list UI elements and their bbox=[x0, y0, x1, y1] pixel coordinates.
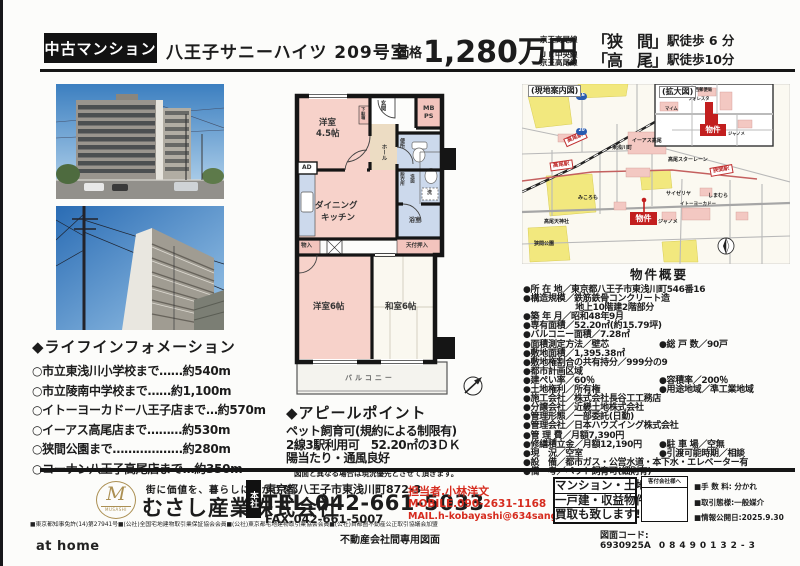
price-label: 価格 bbox=[396, 42, 422, 61]
station-name: 「高 尾」 bbox=[592, 47, 667, 71]
published-date-note: ■情報公開日:2025.9.30 bbox=[694, 512, 784, 523]
map-drawing bbox=[522, 84, 790, 264]
room-label-bath: 浴室 bbox=[409, 218, 421, 224]
map-place-itoyokado: イトーヨーカドー bbox=[680, 202, 716, 208]
header-divider bbox=[40, 69, 795, 72]
company-logo-subtext: MUSASHI bbox=[101, 506, 131, 512]
property-title: 八王子サニーハイツ 209号室 bbox=[166, 38, 409, 63]
diagram-code-number: 08490132-3 bbox=[659, 541, 759, 551]
company-logo: M MUSASHI bbox=[96, 481, 136, 519]
map-place-starlane: 高尾スターレーン bbox=[668, 158, 708, 164]
property-overview-title: 物件概要 bbox=[523, 264, 795, 283]
life-information-title: ◆ライフインフォメーション bbox=[32, 336, 277, 357]
purchase-offer-line: 一戸建・収益物件 bbox=[555, 494, 635, 509]
client-company-label: 客付会社様へ bbox=[641, 476, 688, 488]
section-divider bbox=[40, 468, 795, 472]
property-overview-list: ●所 在 地／東京都八王子市東浅川町546番16 ●構造規模／鉄筋鉄骨コンクリー… bbox=[523, 286, 795, 477]
room-label-dressing: 脱衣所 bbox=[399, 172, 404, 186]
rail-line-name: 京王高尾線 bbox=[540, 36, 592, 44]
floor-plan: 洋室 4.5帖 下駄箱 玄関 MB PS ホール 便所 脱衣所 洗面 洗 AD … bbox=[285, 92, 490, 402]
purchase-offer-line: 買取も致します! bbox=[555, 508, 635, 522]
station-row: ＪＲ中央線 京王高尾線 「高 尾」 駅徒歩10分 bbox=[540, 49, 795, 68]
room-label-storage: 物入 bbox=[301, 244, 312, 250]
room-label-hall: ホール bbox=[380, 144, 386, 161]
contact-person: 担当者.小林洋文 bbox=[408, 483, 489, 499]
room-label-kitchen: キッチン bbox=[321, 214, 355, 223]
room-label-western-6: 洋室6帖 bbox=[313, 303, 344, 312]
map-caption: (現地案内図) bbox=[528, 85, 581, 97]
head-office-badge: 本社 bbox=[246, 480, 261, 518]
map-inset-caption: (拡大図) bbox=[659, 86, 696, 98]
license-text: ■東京都知事免許(14)第27941号■(公社)全国宅地建物取引業保証協会会員■… bbox=[30, 519, 460, 528]
walk-time: 駅徒歩10分 bbox=[667, 49, 734, 68]
fee-note: ■手 数 料: 分かれ bbox=[694, 481, 757, 492]
life-information-list: ○市立東浅川小学校まで……約540m○市立陵南中学校まで……約1,100m○イト… bbox=[32, 362, 277, 479]
room-label-shoebox: 下駄箱 bbox=[361, 107, 365, 120]
room-label-ad: AD bbox=[302, 165, 312, 171]
property-category-badge: 中古マンション bbox=[44, 33, 157, 63]
flyer-page: 中古マンション 八王子サニーハイツ 209号室 価格 1,280万円 京王高尾線… bbox=[0, 0, 800, 566]
room-label-closet: 天付押入 bbox=[406, 244, 428, 250]
map-place-higashiasakawa: 東浅川町 bbox=[612, 146, 632, 152]
map-place-saizeriya: サイゼリヤ bbox=[666, 192, 691, 198]
appeal-point-title: ◆アピールポイント bbox=[286, 402, 516, 423]
overview-row-right: ●用途地域／準工業地域 bbox=[659, 386, 754, 395]
company-fax: FAX.042-661-5007 bbox=[265, 512, 383, 526]
purchase-offer-line: マンション・土地・ bbox=[555, 479, 635, 494]
room-label-dining: ダイニング bbox=[315, 202, 358, 211]
life-info-item: ○市立東浅川小学校まで……約540m bbox=[32, 362, 277, 382]
purchase-offer-box: マンション・土地・一戸建・収益物件買取も致します! bbox=[553, 477, 637, 524]
document-type-label: 不動産会社間専用図面 bbox=[340, 531, 440, 546]
life-info-item: ○市立陵南中学校まで……約1,100m bbox=[32, 382, 277, 402]
transaction-type-note: ■取引態様:一般媒介 bbox=[694, 497, 764, 508]
rail-line-name: 京王高尾線 bbox=[540, 59, 592, 67]
appeal-point-list: ペット飼育可(規約による制限有)2線3駅利用可 52.20㎡の3ＤＫ陽当たり・通… bbox=[286, 425, 516, 466]
map-route-badge-20: 20 bbox=[576, 128, 587, 135]
life-info-item: ○イトーヨーカドー八王子店まで…約570m bbox=[32, 401, 277, 421]
room-label-mb: MB bbox=[423, 105, 434, 112]
map-inset-property-marker: 物件 bbox=[700, 124, 726, 136]
room-label-entrance: 玄関 bbox=[379, 100, 385, 111]
room-label-washstand: 洗面 bbox=[409, 174, 414, 183]
station-access: 京王高尾線 「狭 間」 駅徒歩 6 分 ＪＲ中央線 京王高尾線 「高 尾」 駅徒… bbox=[540, 30, 795, 68]
map-property-marker: 物件 bbox=[630, 212, 657, 225]
overview-row-right: ●総 戸 数／90戸 bbox=[659, 341, 728, 350]
room-label-western-4-5: 洋室 bbox=[319, 119, 336, 128]
life-info-item: ○イーアス高尾店まで………約530m bbox=[32, 421, 277, 441]
life-information-section: ◆ライフインフォメーション ○市立東浅川小学校まで……約540m○市立陵南中学校… bbox=[32, 336, 277, 479]
room-label-western-4-5-size: 4.5帖 bbox=[316, 130, 340, 139]
appeal-point-item: 2線3駅利用可 52.20㎡の3ＤＫ bbox=[286, 439, 516, 453]
contact-mobile: MOBILE.090-2631-1168 bbox=[408, 498, 546, 510]
map-place-janome-inset: ジャノメ bbox=[728, 132, 745, 138]
room-label-ps: PS bbox=[424, 113, 433, 120]
life-info-item: ○狭間公園まで………………約280m bbox=[32, 440, 277, 460]
building-photo-exterior-2 bbox=[56, 206, 224, 330]
client-company-stamp-box: 客付会社様へ bbox=[641, 476, 688, 522]
appeal-point-item: ペット飼育可(規約による制限有) bbox=[286, 425, 516, 439]
walk-time: 駅徒歩 6 分 bbox=[667, 30, 734, 49]
diagram-code-label: 図面コード: 6930925A bbox=[600, 531, 651, 551]
client-company-stamp-area bbox=[641, 488, 688, 522]
athome-logo: at home bbox=[36, 539, 100, 554]
appeal-point-item: 陽当たり・通風良好 bbox=[286, 452, 516, 466]
map-place-maimu: マイム bbox=[665, 107, 678, 113]
property-overview-section: 物件概要 ●所 在 地／東京都八王子市東浅川町546番16 ●構造規模／鉄筋鉄骨… bbox=[523, 264, 795, 477]
map-place-shimamura: しまむら bbox=[708, 194, 728, 200]
map-place-janome: ジャノメ bbox=[658, 220, 678, 226]
building-photo-exterior-1 bbox=[56, 84, 224, 199]
room-label-laundry: 洗 bbox=[427, 191, 432, 196]
room-label-balcony: バルコニー bbox=[345, 375, 395, 382]
map-place-tenjinsha: 高尾天神社 bbox=[544, 220, 569, 226]
scan-edge bbox=[0, 0, 3, 566]
map-place-hazama-park: 狭間公園 bbox=[534, 242, 554, 248]
room-label-japanese-6: 和室6帖 bbox=[385, 303, 416, 312]
room-label-toilet: 便所 bbox=[399, 138, 404, 148]
company-logo-m: M bbox=[97, 482, 135, 506]
diagram-code: 図面コード: 6930925A08490132-3 bbox=[600, 528, 800, 551]
map-place-ieas: イーアス高尾 bbox=[632, 139, 662, 145]
station-row: 京王高尾線 「狭 間」 駅徒歩 6 分 bbox=[540, 30, 795, 49]
location-map: (現地案内図) (拡大図) 高尾駅 高尾駅 狭間駅 物件 物件 46 20 イー… bbox=[522, 84, 790, 264]
map-place-mikoromo: みころも bbox=[578, 196, 598, 202]
